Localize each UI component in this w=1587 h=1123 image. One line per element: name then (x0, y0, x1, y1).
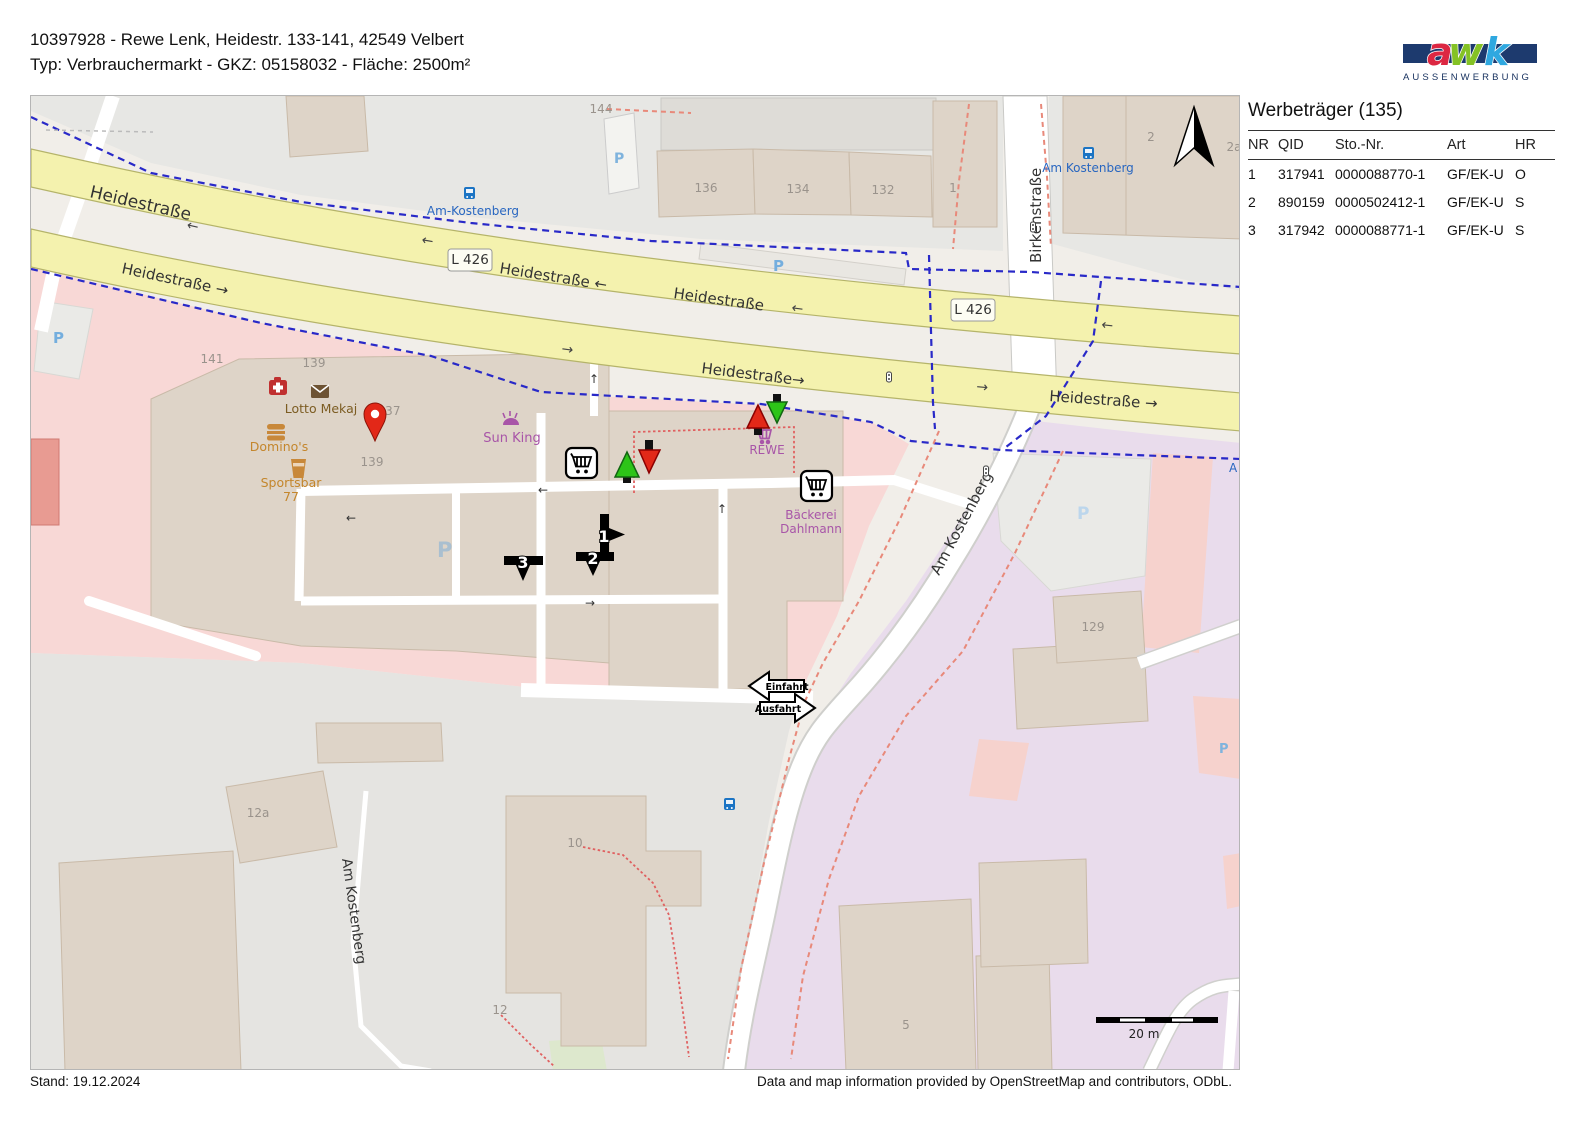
cell-qid: 317942 (1278, 222, 1335, 238)
flow-arrow: ↑ (589, 372, 599, 386)
poi-label-dahlmann: Dahlmann (780, 522, 842, 536)
service-road (301, 599, 719, 601)
poi-label-sportsbar-77: 77 (283, 489, 299, 504)
osm-attribution: Data and map information provided by Ope… (0, 1074, 1232, 1089)
map-canvas[interactable]: Heidestraße ← ← L 426 Heidestraße ← Heid… (30, 95, 1240, 1070)
building (661, 98, 936, 150)
landuse-pink-strip (1193, 696, 1239, 779)
bus-stop-icon (724, 798, 735, 810)
col-hr: HR (1515, 137, 1555, 153)
building (976, 953, 1052, 1069)
cell-art: GF/EK-U (1447, 166, 1515, 182)
panel-title: Werbeträger (135) (1248, 100, 1555, 131)
bus-stop-icon (464, 187, 475, 199)
awk-logo: a w k AUSSENWERBUNG (1403, 24, 1537, 89)
house-number: 139 (361, 455, 384, 469)
cell-qid: 890159 (1278, 194, 1335, 210)
house-number: 134 (787, 182, 810, 196)
street-label-partial: A (1229, 461, 1238, 475)
building (316, 723, 443, 763)
col-stonr: Sto.-Nr. (1335, 137, 1447, 153)
cell-nr: 1 (1248, 166, 1278, 182)
oneway-arrow: → (976, 379, 989, 396)
cell-hr: S (1515, 222, 1555, 238)
bus-stop-label: Am Kostenberg (1042, 161, 1134, 175)
road (1228, 991, 1234, 1069)
cell-art: GF/EK-U (1447, 194, 1515, 210)
supermarket-icon (801, 471, 832, 501)
parking-icon: P (614, 151, 624, 167)
parking-icon: P (437, 538, 452, 562)
building (286, 96, 368, 157)
cell-stonr: 0000088770-1 (1335, 166, 1447, 182)
parking-icon: P (1219, 742, 1229, 757)
poi-label-baeckerei: Bäckerei (785, 508, 836, 522)
building (59, 851, 241, 1069)
house-number: 144 (590, 102, 613, 116)
bus-stop-icon (1083, 147, 1094, 159)
table-row: 1 317941 0000088770-1 GF/EK-U O (1248, 160, 1555, 188)
table-row: 2 890159 0000502412-1 GF/EK-U S (1248, 188, 1555, 216)
flow-arrow: ← (346, 511, 356, 525)
house-number: 136 (695, 181, 718, 195)
building-red (31, 439, 59, 525)
poi-label-sportsbar: Sportsbar (261, 475, 323, 490)
house-number: 132 (872, 183, 895, 197)
report-page: 10397928 - Rewe Lenk, Heidestr. 133-141,… (0, 0, 1587, 1123)
route-ref: L 426 (451, 252, 489, 268)
scale-label: 20 m (1129, 1027, 1160, 1041)
cell-hr: S (1515, 194, 1555, 210)
cell-stonr: 0000088771-1 (1335, 222, 1447, 238)
cell-qid: 317941 (1278, 166, 1335, 182)
col-art: Art (1447, 137, 1515, 153)
oneway-arrow: ← (1101, 317, 1114, 334)
ausfahrt-label: Ausfahrt (755, 704, 802, 715)
col-qid: QID (1278, 137, 1335, 153)
marker-number: 2 (587, 549, 598, 568)
house-number: 139 (303, 356, 326, 370)
house-number: 129 (1082, 620, 1105, 634)
marker-number: 3 (517, 553, 528, 572)
parking-icon: P (1077, 504, 1089, 524)
poi-label-sunking: Sun King (483, 431, 541, 446)
poi-label-rewe: REWE (749, 443, 784, 457)
street-label-birkenstrasse: Birkenstraße (1027, 168, 1045, 263)
cell-stonr: 0000502412-1 (1335, 194, 1447, 210)
report-title: 10397928 - Rewe Lenk, Heidestr. 133-141,… (30, 30, 464, 50)
einfahrt-label: Einfahrt (765, 682, 809, 693)
werbetraeger-panel: Werbeträger (135) NR QID Sto.-Nr. Art HR… (1248, 100, 1555, 244)
parking-icon: P (53, 329, 64, 347)
oneway-arrow: ← (790, 300, 804, 317)
traffic-signal-icon (887, 372, 892, 382)
post-icon (311, 385, 329, 398)
house-number: 2a (1227, 140, 1240, 154)
building (979, 859, 1088, 967)
house-number: 12 (492, 1003, 507, 1017)
poi-label-dominos: Domino's (250, 439, 308, 454)
building-1 (933, 101, 997, 227)
cell-nr: 3 (1248, 222, 1278, 238)
logo-letter-k: k (1484, 30, 1512, 74)
supermarket-icon (566, 448, 597, 478)
building-5 (839, 899, 976, 1069)
house-number: 2 (1147, 130, 1155, 144)
service-road (299, 489, 301, 601)
flow-arrow: → (585, 596, 595, 610)
poi-label-lotto: Lotto Mekaj (285, 401, 357, 416)
route-ref: L 426 (954, 302, 992, 318)
house-number: 5 (902, 1018, 910, 1032)
table-header: NR QID Sto.-Nr. Art HR (1248, 131, 1555, 160)
bus-stop-label: Am-Kostenberg (427, 204, 519, 218)
traffic-signal-icon (984, 466, 989, 476)
cell-nr: 2 (1248, 194, 1278, 210)
cell-hr: O (1515, 166, 1555, 182)
parking-icon: P (773, 257, 784, 275)
col-nr: NR (1248, 137, 1278, 153)
house-number: 141 (201, 352, 224, 366)
traffic-signal-icon (1031, 222, 1036, 232)
house-number: 12a (247, 806, 270, 820)
report-subtitle: Typ: Verbrauchermarkt - GKZ: 05158032 - … (30, 55, 470, 75)
flow-arrow: ↑ (717, 502, 727, 516)
cell-art: GF/EK-U (1447, 222, 1515, 238)
marker-number: 1 (598, 527, 609, 546)
flow-arrow: ← (538, 483, 548, 497)
logo-letter-w: w (1448, 30, 1484, 74)
table-row: 3 317942 0000088771-1 GF/EK-U S (1248, 216, 1555, 244)
logo-subtitle: AUSSENWERBUNG (1403, 72, 1532, 83)
house-number: 1 (949, 181, 957, 195)
building-12a (226, 771, 337, 863)
house-number: 10 (567, 836, 582, 850)
